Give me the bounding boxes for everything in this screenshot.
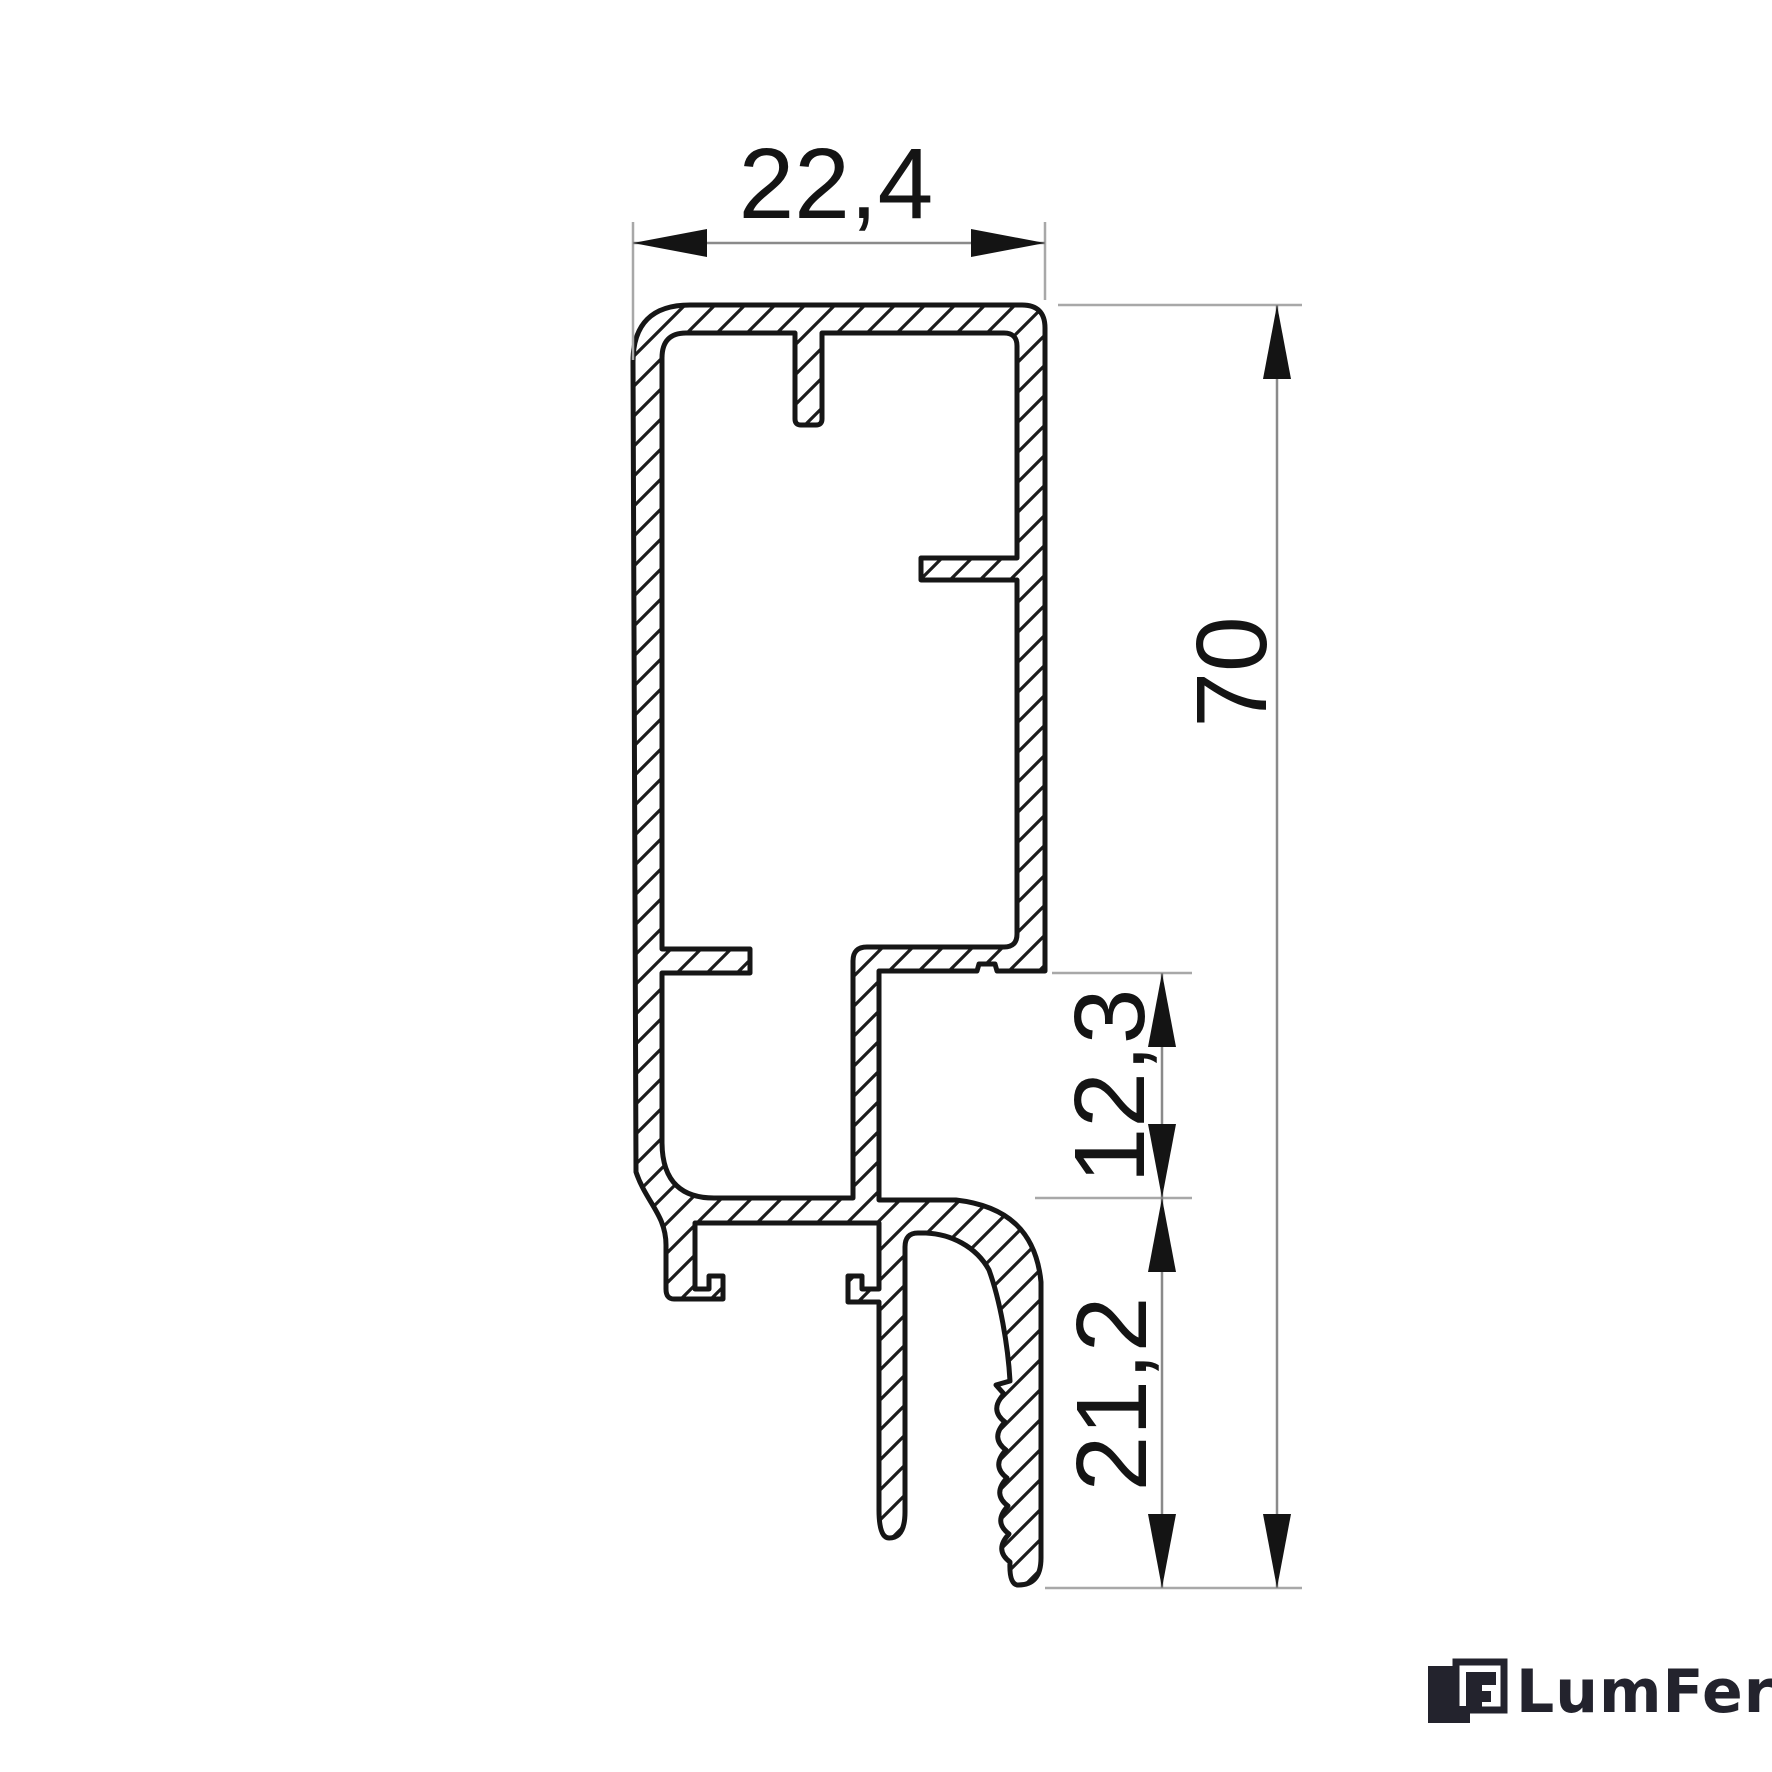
profile-section <box>633 305 1045 1585</box>
arrow-down-icon <box>1263 1514 1291 1588</box>
logo-text: LumFer <box>1516 1657 1772 1727</box>
dimension-leg-height: 21,2 <box>1056 1198 1176 1588</box>
dimension-leg-height-label: 21,2 <box>1056 1297 1168 1492</box>
dimension-height-label: 70 <box>1176 616 1288 727</box>
lf-monogram-icon <box>1428 1662 1504 1723</box>
arrow-up-icon <box>1263 305 1291 379</box>
arrow-up-icon <box>1148 1198 1176 1272</box>
logo: LumFer <box>1428 1657 1772 1727</box>
dimension-step-depth-label: 12,3 <box>1054 989 1166 1184</box>
dimension-step-depth: 12,3 <box>1035 973 1192 1198</box>
drawing-canvas: 22,4 70 12,3 21,2 <box>0 0 1772 1772</box>
arrow-down-icon <box>1148 1514 1176 1588</box>
profile-outline <box>633 305 1045 1585</box>
dimension-width-label: 22,4 <box>739 128 934 240</box>
technical-drawing: 22,4 70 12,3 21,2 <box>0 0 1772 1772</box>
arrow-right-icon <box>971 229 1045 257</box>
arrow-left-icon <box>633 229 707 257</box>
